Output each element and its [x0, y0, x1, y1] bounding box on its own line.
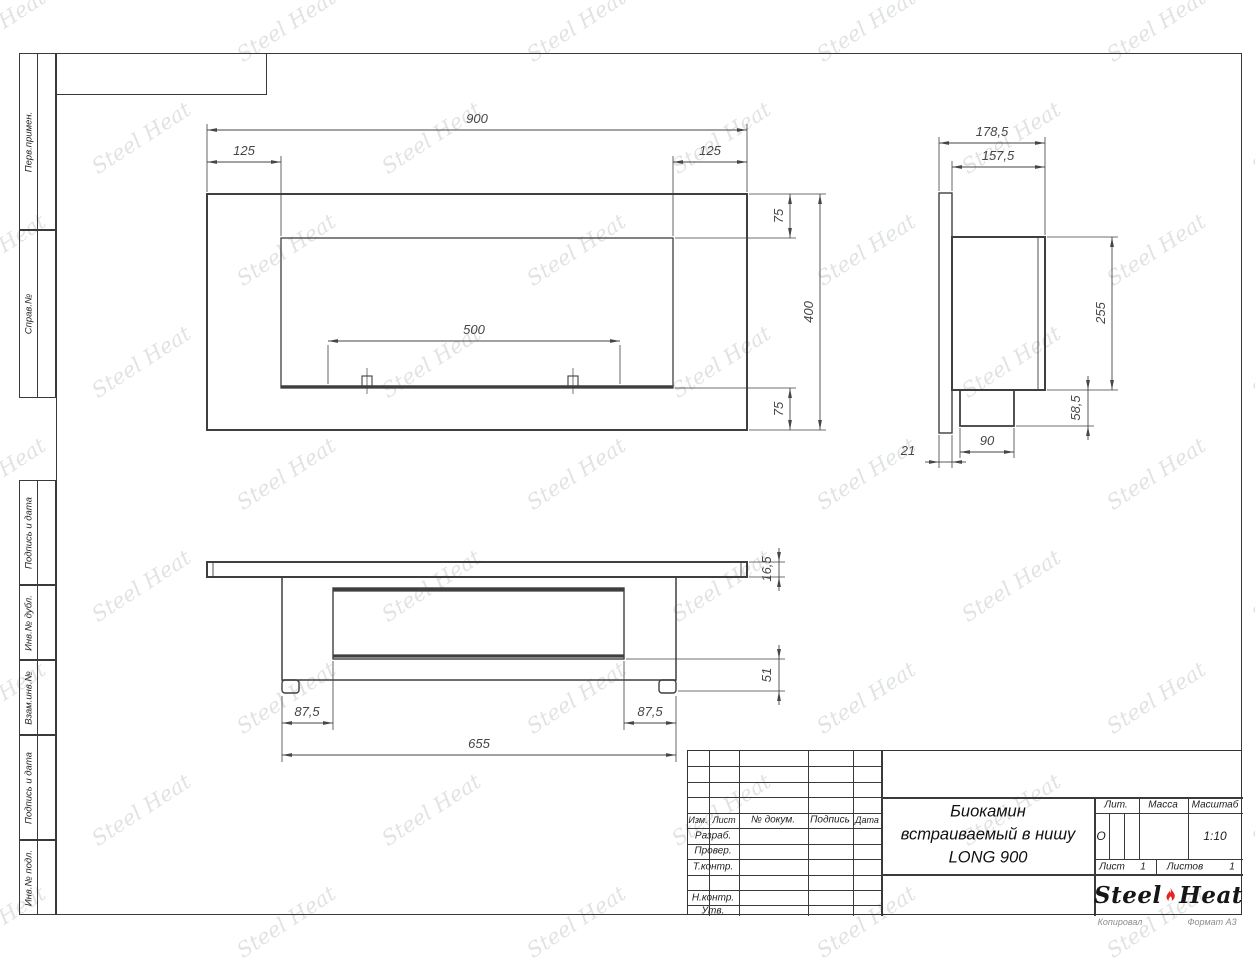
- dimension: 51: [759, 645, 781, 705]
- dimension-value: 75: [771, 208, 786, 223]
- part-outline: [282, 680, 299, 693]
- tb-date-header: Дата: [855, 815, 879, 825]
- dimension-value: 255: [1093, 301, 1108, 324]
- tb-line: [688, 859, 881, 860]
- tb-line: [881, 797, 1243, 799]
- dimension-value: 58,5: [1068, 395, 1083, 421]
- dim-arrow: [788, 194, 792, 204]
- dim-arrow: [777, 691, 781, 701]
- dimension: 125: [673, 143, 747, 164]
- title-block: Изм. Лист № докум. Подпись Дата Разраб. …: [687, 750, 1242, 915]
- dim-arrow: [777, 649, 781, 659]
- tb-line: [1188, 797, 1189, 859]
- dimension: 655: [282, 736, 676, 757]
- tb-line: [688, 797, 881, 798]
- part-outline: [282, 577, 676, 680]
- side-view: 178,5157,525558,59021: [900, 124, 1118, 468]
- logo-steel-text: Steel: [1094, 882, 1162, 909]
- dimension-value: 900: [466, 111, 488, 126]
- dim-arrow: [952, 165, 962, 169]
- dimension-value: 655: [468, 736, 490, 751]
- dimension: 75: [771, 194, 792, 238]
- dim-arrow: [666, 753, 676, 757]
- dim-arrow: [624, 721, 634, 725]
- dimension: 58,5: [1068, 376, 1090, 440]
- dimension-value: 178,5: [976, 124, 1009, 139]
- dim-arrow: [323, 721, 333, 725]
- copied-note: Копировал: [1098, 917, 1143, 927]
- dimension: 125: [207, 143, 281, 164]
- tb-doc-header: № докум.: [751, 815, 795, 826]
- dim-arrow: [282, 721, 292, 725]
- dimension-value: 400: [801, 300, 816, 322]
- dimension: 900: [207, 111, 747, 132]
- dim-arrow: [673, 160, 683, 164]
- dim-arrow: [788, 388, 792, 398]
- tb-sheets-value: 1: [1229, 861, 1235, 872]
- dim-arrow: [737, 160, 747, 164]
- dim-arrow: [788, 420, 792, 430]
- dim-arrow: [777, 577, 781, 587]
- tb-line: [1094, 813, 1243, 814]
- tb-row-razrab: Разраб.: [695, 831, 731, 842]
- dim-arrow: [1086, 380, 1090, 390]
- tb-line: [688, 766, 881, 767]
- tb-scale-value: 1:10: [1203, 829, 1226, 843]
- dimension: 21: [900, 443, 966, 464]
- dimension-value: 87,5: [294, 704, 320, 719]
- part-outline: [207, 194, 747, 430]
- tb-lit-value: О: [1096, 829, 1105, 843]
- dim-arrow: [788, 228, 792, 238]
- dimension-value: 16,5: [759, 556, 774, 582]
- dim-arrow: [282, 753, 292, 757]
- tb-line: [688, 828, 881, 829]
- tb-row-prover: Провер.: [694, 846, 731, 857]
- tb-row-utv: Утв.: [702, 905, 725, 916]
- dim-arrow: [818, 194, 822, 204]
- dimension: 400: [801, 194, 822, 430]
- bottom-view: 16,55187,587,5655: [207, 548, 785, 762]
- tb-mass-header: Масса: [1148, 800, 1178, 811]
- part-outline: [333, 588, 624, 659]
- part-outline: [659, 680, 676, 693]
- dimension: 87,5: [624, 704, 676, 725]
- tb-line: [853, 751, 854, 916]
- doc-title-line1: Биокамин: [950, 803, 1026, 822]
- tb-list-header: Лист: [712, 815, 735, 825]
- flame-icon: [1165, 881, 1176, 909]
- dim-arrow: [610, 339, 620, 343]
- part-outline: [281, 238, 673, 388]
- dim-arrow: [1035, 141, 1045, 145]
- dimension-value: 157,5: [982, 148, 1015, 163]
- dim-arrow: [1110, 237, 1114, 247]
- part-outline: [207, 562, 747, 577]
- dim-arrow: [1110, 380, 1114, 390]
- tb-line: [881, 751, 883, 916]
- dim-arrow: [1086, 426, 1090, 436]
- dimension: 87,5: [282, 704, 333, 725]
- dim-arrow: [818, 420, 822, 430]
- tb-sheet-label: Лист: [1099, 861, 1125, 872]
- tb-line: [688, 875, 881, 876]
- dimension: 90: [960, 433, 1014, 454]
- dimension-value: 90: [980, 433, 995, 448]
- dim-arrow: [207, 160, 217, 164]
- dim-arrow: [271, 160, 281, 164]
- part-outline: [952, 237, 1045, 390]
- part-outline: [939, 193, 952, 433]
- tb-line: [1139, 797, 1140, 859]
- dimension: 255: [1093, 237, 1114, 390]
- tb-row-tkontr: Т.контр.: [693, 862, 733, 873]
- tb-lit-header: Лит.: [1104, 800, 1127, 811]
- dim-arrow: [207, 128, 217, 132]
- dim-arrow: [1035, 165, 1045, 169]
- part-outline: [960, 390, 1014, 426]
- dimension-value: 21: [900, 443, 915, 458]
- tb-line: [808, 751, 809, 916]
- doc-title-line2: встраиваемый в нишу: [901, 826, 1076, 845]
- tb-izm-header: Изм.: [688, 815, 707, 825]
- dim-arrow: [328, 339, 338, 343]
- front-view: 9001251257540075500: [207, 111, 826, 430]
- dim-arrow: [1004, 450, 1014, 454]
- drawing-sheet: Steel HeatSteel HeatSteel HeatSteel Heat…: [0, 0, 1255, 970]
- dimension-value: 125: [699, 143, 721, 158]
- dimension-value: 125: [233, 143, 255, 158]
- tb-line: [1124, 813, 1125, 859]
- tb-line: [1094, 859, 1243, 860]
- dimension-value: 500: [463, 322, 485, 337]
- dimension: 178,5: [939, 124, 1045, 145]
- dim-arrow: [929, 460, 939, 464]
- tb-line: [688, 890, 881, 891]
- dim-arrow: [939, 141, 949, 145]
- dim-arrow: [777, 552, 781, 562]
- tb-line: [1109, 813, 1110, 859]
- tb-row-nkontr: Н.контр.: [692, 892, 734, 903]
- tb-sign-header: Подпись: [810, 815, 850, 826]
- dim-arrow: [960, 450, 970, 454]
- dimension-value: 51: [759, 668, 774, 682]
- tb-sheets-label: Листов: [1167, 861, 1203, 872]
- dimension: 157,5: [952, 148, 1045, 169]
- tb-scale-header: Масштаб: [1192, 800, 1239, 811]
- doc-title-line3: LONG 900: [949, 849, 1028, 868]
- tb-sheet-value: 1: [1140, 861, 1146, 872]
- dimension: 16,5: [759, 548, 781, 591]
- dimension-value: 75: [771, 401, 786, 416]
- format-note: Формат А3: [1187, 917, 1236, 927]
- dim-arrow: [666, 721, 676, 725]
- dimension-value: 87,5: [637, 704, 663, 719]
- tb-line: [688, 782, 881, 783]
- dim-arrow: [952, 460, 962, 464]
- dim-arrow: [737, 128, 747, 132]
- tb-line: [1156, 859, 1157, 874]
- tb-line: [739, 751, 740, 916]
- dimension: 500: [328, 322, 620, 343]
- logo-heat-text: Heat: [1179, 882, 1243, 909]
- dimension: 75: [771, 388, 792, 430]
- steelheat-logo: Steel Heat: [1094, 874, 1243, 916]
